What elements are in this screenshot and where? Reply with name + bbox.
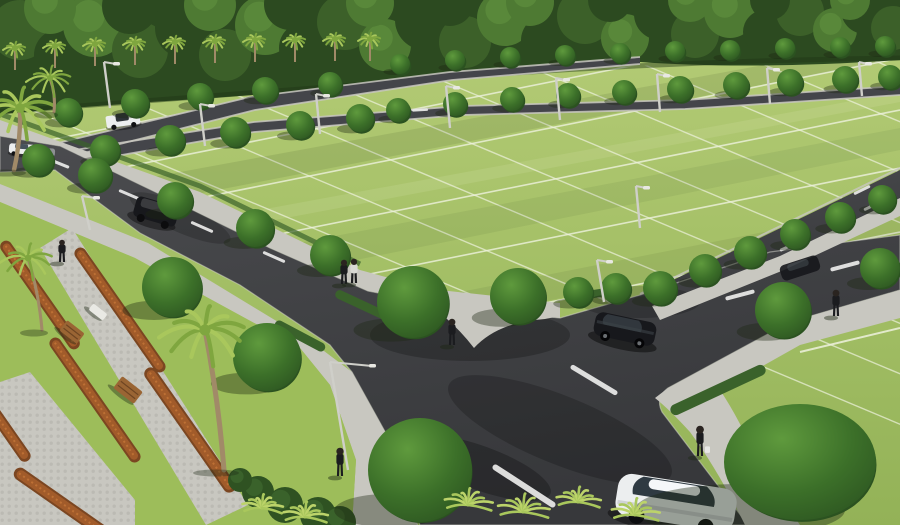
scene-svg	[0, 0, 900, 525]
briefcase	[705, 446, 710, 453]
aerial-render-image	[0, 0, 900, 525]
